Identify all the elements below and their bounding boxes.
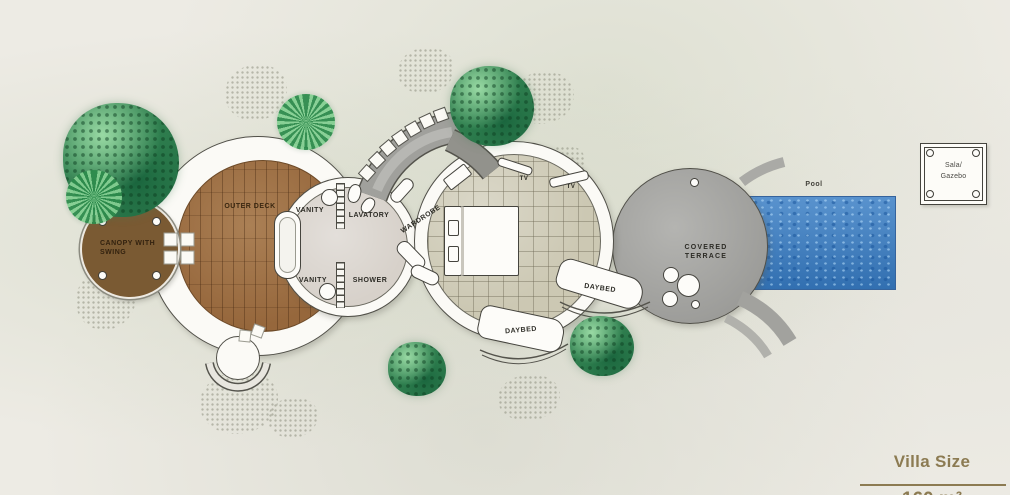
vanity-sink [319,283,336,300]
covered-terrace-label: COVERED TERRACE [668,243,744,261]
terrace-table [677,274,700,297]
fan-palm [66,170,122,224]
canopy-label: CANOPY WITH SWING [100,239,164,257]
lavatory-label: LAVATORY [341,211,397,220]
bathroom-floor [288,187,408,307]
terrace-post [690,178,699,187]
bathtub-basin [279,217,296,273]
vanity-top-label: VANITY [288,206,332,215]
bed [461,206,519,276]
pool [748,196,896,290]
vanity-bottom-label: VANITY [291,276,335,285]
tv-left-label: TV [516,176,532,184]
bathroom-partition [336,183,345,229]
outer-deck-label: OUTER DECK [212,202,288,211]
terrace-post [691,300,700,309]
canopy-post [152,217,161,226]
tree [570,316,634,376]
gazebo-label-line1: Sala/ [945,162,962,169]
canopy-label-line2: SWING [100,249,126,256]
terrace-chair [662,291,678,307]
nightstand [448,246,459,262]
bed-headboard [444,206,462,276]
gazebo-post [972,190,980,198]
gazebo-post [972,149,980,157]
tree [388,342,446,396]
vanity-sink [321,189,338,206]
villa-floor-plan: CANOPY WITH SWING OUTER DECK VANITY LAVA… [0,0,1010,495]
gazebo-box: Sala/ Gazebo [920,143,987,205]
gazebo-label: Sala/ Gazebo [921,160,986,182]
villa-size-value: 160 m² [858,489,1006,495]
pool-label: Pool [794,180,834,189]
shower-label: SHOWER [342,276,398,285]
villa-size-title: Villa Size [858,452,1006,472]
gazebo-label-line2: Gazebo [941,173,967,180]
gazebo-post [926,149,934,157]
terrace-chair [663,267,679,283]
nightstand [448,220,459,236]
villa-size-divider [860,484,1006,486]
tv-right-label: TV [563,184,579,192]
terrace-label-line2: TERRACE [685,253,727,260]
tree [450,66,534,146]
canopy-post [152,271,161,280]
gazebo-post [926,190,934,198]
outdoor-platform [216,336,260,380]
canopy-label-line1: CANOPY WITH [100,240,155,247]
fan-palm [277,94,335,150]
canopy-post [98,271,107,280]
terrace-label-line1: COVERED [684,244,727,251]
